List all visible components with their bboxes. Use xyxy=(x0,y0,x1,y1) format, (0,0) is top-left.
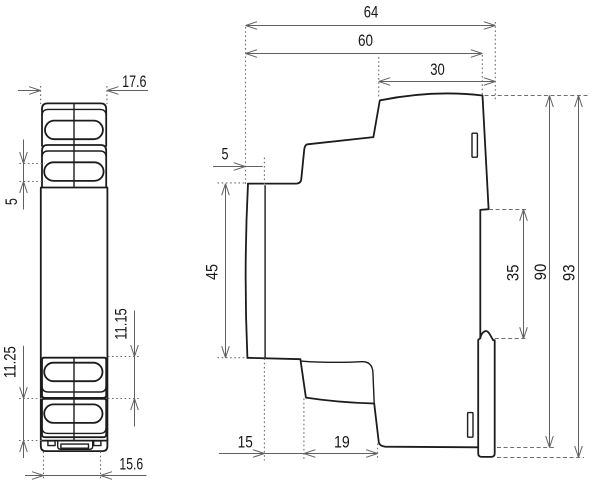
svg-text:17.6: 17.6 xyxy=(122,72,146,91)
svg-text:5: 5 xyxy=(2,198,21,205)
svg-text:15.6: 15.6 xyxy=(119,454,143,473)
svg-text:11.15: 11.15 xyxy=(112,308,131,340)
svg-text:15: 15 xyxy=(238,432,253,451)
svg-text:90: 90 xyxy=(531,264,550,281)
svg-text:45: 45 xyxy=(203,264,222,280)
svg-text:60: 60 xyxy=(358,31,373,50)
svg-text:5: 5 xyxy=(222,145,229,164)
svg-text:93: 93 xyxy=(560,265,579,282)
svg-text:35: 35 xyxy=(504,265,523,282)
svg-text:19: 19 xyxy=(334,432,350,451)
svg-text:30: 30 xyxy=(430,60,445,79)
svg-text:11.25: 11.25 xyxy=(1,346,20,378)
svg-text:64: 64 xyxy=(364,3,379,22)
